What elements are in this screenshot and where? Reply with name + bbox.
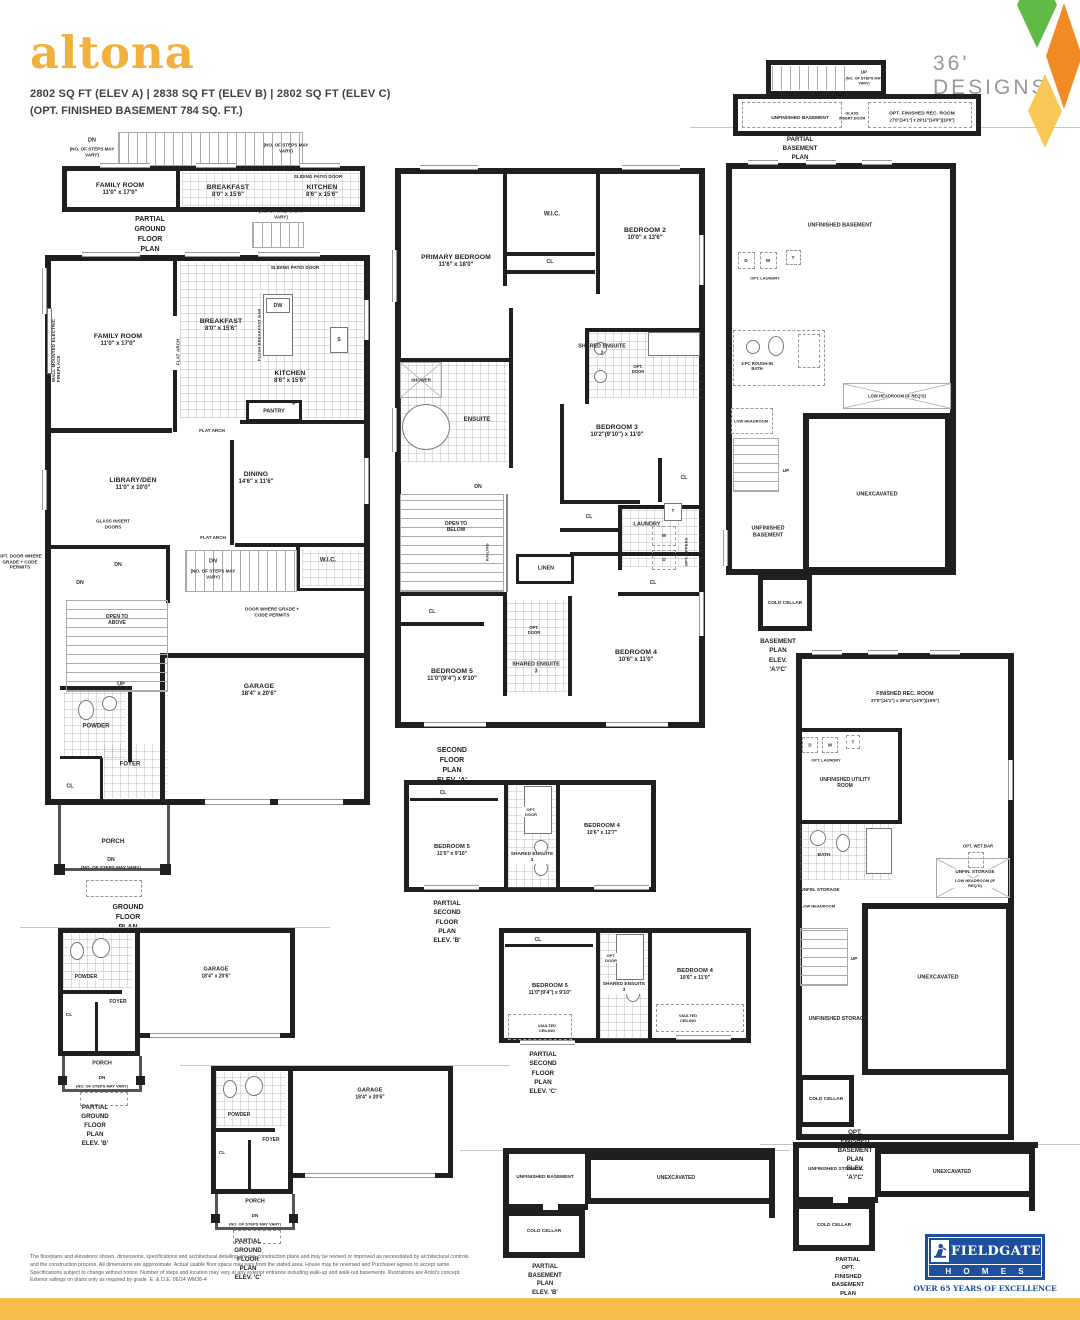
toilet — [78, 700, 94, 720]
note-cl: CL — [547, 259, 554, 266]
wall — [618, 505, 705, 509]
note-cl: CL — [535, 937, 542, 943]
wall — [556, 784, 560, 888]
room-name: BEDROOM 4 — [567, 823, 637, 830]
room-label-library: LIBRARY/DEN 11'0" x 10'0" — [95, 477, 171, 493]
window — [196, 163, 236, 168]
note-dn: DN — [107, 857, 115, 864]
caption-line: ELEV. 'C' — [529, 1087, 556, 1096]
wall — [658, 458, 662, 502]
note-tank: T — [792, 255, 795, 261]
porch-post — [211, 1214, 220, 1223]
window — [606, 722, 668, 727]
room-dims: 18'4" x 20'6" — [219, 691, 299, 699]
floor-tile — [507, 600, 567, 692]
room-name: BEDROOM 5 — [507, 983, 593, 990]
tub-outline — [798, 334, 820, 368]
note-open-above: OPEN TO ABOVE — [99, 614, 135, 627]
porch-steps — [86, 880, 142, 897]
room-label-ensuite: ENSUITE — [464, 416, 491, 424]
window — [723, 530, 728, 566]
note-opt-door: OPT. DOOR — [525, 625, 543, 636]
wall — [769, 1204, 775, 1218]
wall-outline — [135, 928, 295, 1038]
window — [82, 252, 140, 257]
room-name: BEDROOM 5 — [412, 844, 492, 851]
porch-post — [136, 1076, 145, 1085]
note-tank: T — [672, 509, 675, 515]
caption-line: ELEV. 'B' — [81, 1140, 109, 1149]
room-name: BREAKFAST — [193, 184, 263, 192]
note-dn: DN — [474, 484, 482, 491]
sink — [102, 696, 117, 711]
wall — [898, 728, 902, 822]
caption-line: PARTIAL GROUND FLOOR PLAN — [81, 1104, 109, 1140]
note-low-headroom: LOW HEADROOM (IF REQ'D) — [867, 393, 927, 398]
window — [868, 650, 898, 655]
room-name: KITCHEN — [259, 370, 321, 378]
sink — [92, 938, 110, 958]
note-cl: CL — [586, 514, 593, 520]
plan-caption: PARTIAL BASEMENT PLAN ELEV. 'B' — [528, 1263, 562, 1298]
note-dn: DN — [209, 559, 217, 566]
room-label-foyer: FOYER — [109, 999, 126, 1005]
fieldgate-wordmark: FIELDGATE — [951, 1244, 1041, 1259]
note-up: UP — [783, 469, 790, 475]
window — [812, 650, 842, 655]
room-label-ensuite2: SHARED ENSUITE 2 — [577, 343, 627, 357]
window — [748, 160, 778, 165]
room-label-powder: POWDER — [75, 974, 98, 980]
toilet — [70, 942, 84, 960]
room-label-bedroom4: BEDROOM 4 10'6" x 11'0" — [601, 649, 671, 665]
bathtub — [402, 404, 450, 450]
wall — [509, 308, 513, 468]
note-opt-laundry: OPT. LAUNDRY — [750, 276, 779, 281]
disclaimer-line: Exterior railings on plans only as requi… — [30, 1277, 470, 1285]
room-dims: 18'4" x 20'6" — [181, 973, 251, 980]
room-name: FAMILY ROOM — [85, 182, 155, 190]
room-label-garage: GARAGE 18'4" x 20'6" — [219, 683, 299, 699]
note-tank: T — [852, 739, 855, 745]
window — [520, 1040, 575, 1045]
wall — [173, 261, 177, 316]
room-name: BEDROOM 4 — [660, 968, 730, 975]
bathtub — [648, 332, 700, 356]
wall — [800, 728, 900, 732]
room-label-cold: COLD CELLAR — [806, 1097, 846, 1103]
room-label-storage: UNFINISHED STORAGE — [807, 1167, 863, 1173]
room-label-utility: UNFINISHED UTILITY ROOM — [813, 777, 877, 790]
room-dims: 11'0" x 17'0" — [85, 190, 155, 198]
room-label-unfin: UNFINISHED BASEMENT — [770, 116, 830, 122]
room-label-foyer: FOYER — [120, 761, 141, 769]
wall — [176, 171, 180, 212]
note-opt-door: OPT. DOOR — [602, 953, 620, 963]
note-wet-bar: OPT. WET BAR — [963, 843, 993, 848]
window — [676, 1035, 731, 1040]
room-label-ensuite3: SHARED ENSUITE 3 — [509, 852, 555, 864]
wall — [95, 1002, 98, 1052]
note-washer: W — [662, 534, 667, 540]
room-label-cold: COLD CELLAR — [765, 601, 805, 607]
note-door-grade: DOOR WHERE GRADE + CODE PERMITS — [241, 606, 303, 617]
room-label-bath: BATH — [818, 853, 831, 859]
note-cl: CL — [650, 580, 657, 586]
room-label-storage-c: UNFINISHED STORAGE — [808, 1016, 868, 1023]
caption-line: PARTIAL OPT. FINISHED BASEMENT PLAN — [832, 1256, 865, 1298]
note-dn: DN — [252, 1213, 259, 1219]
note-flat-arch: FLAT ARCH — [200, 535, 226, 541]
wall — [160, 653, 365, 658]
window — [185, 252, 240, 257]
stairs — [800, 928, 848, 986]
room-label-ensuite3: SHARED ENSUITE 3 — [511, 661, 561, 675]
note-washer: W — [766, 258, 770, 264]
room-label-dining: DINING 14'6" x 11'6" — [221, 471, 291, 487]
note-up: UP — [851, 957, 858, 963]
room-label-wic: W.I.C. — [320, 557, 336, 565]
window — [420, 165, 478, 170]
wall — [503, 270, 595, 274]
window — [424, 722, 486, 727]
room-label-bedroom5: BEDROOM 5 11'0"(9'4") x 9'10" — [409, 668, 495, 684]
fieldgate-logo: FIELDGATE H O M E S — [925, 1234, 1045, 1280]
wall — [503, 596, 507, 696]
caption-line: PARTIAL BASEMENT PLAN — [783, 136, 818, 163]
note-dn: DN — [99, 1075, 106, 1081]
note-vaulted: VAULTED CEILING — [671, 1013, 705, 1023]
room-label-garage: GARAGE 18'4" x 20'6" — [181, 966, 251, 979]
note-glass-door: GLASS INSERT DOOR — [838, 111, 866, 120]
room-dims: 8'6" x 15'6" — [291, 192, 353, 200]
room-label-ensuite3: SHARED ENSUITE 3 — [601, 982, 647, 994]
note-washer: W — [828, 742, 832, 748]
note-cl: CL — [681, 475, 688, 481]
room-name: PRIMARY BEDROOM — [414, 254, 498, 262]
caption-line: PARTIAL SECOND FLOOR PLAN — [529, 1050, 556, 1087]
room-dims: 8'0" x 15'6" — [193, 192, 263, 200]
plan-caption: PARTIAL GROUND FLOOR PLAN ELEV. 'B' — [81, 1104, 109, 1149]
room-label-family: FAMILY ROOM 11'0" x 17'0" — [85, 182, 155, 198]
room-dims: 10'6" x 12'7" — [567, 830, 637, 837]
bathtub — [616, 934, 644, 980]
wall — [173, 370, 177, 432]
note-opt-door: OPT. DOOR — [629, 364, 647, 375]
room-dims: 10'6" x 11'0" — [660, 975, 730, 982]
room-label-bedroom4: BEDROOM 4 10'6" x 12'7" — [567, 823, 637, 837]
room-label-bedroom2: BEDROOM 2 10'0" x 13'6" — [610, 227, 680, 243]
caption-line: BASEMENT PLAN — [760, 637, 796, 656]
room-label-pantry: PANTRY — [263, 409, 285, 416]
room-label-bedroom5: BEDROOM 5 11'0" x 9'10" — [412, 844, 492, 858]
sink — [746, 340, 760, 354]
wall — [399, 622, 484, 626]
room-name: BEDROOM 3 — [574, 424, 660, 432]
room-label-cold: COLD CELLAR — [814, 1223, 854, 1229]
note-dn: DN — [114, 562, 122, 569]
window — [364, 458, 369, 504]
wall — [100, 758, 103, 805]
window — [862, 160, 892, 165]
note-flat-arch: FLAT ARCH — [199, 428, 225, 434]
room-label-primary: PRIMARY BEDROOM 11'6" x 18'0" — [414, 254, 498, 270]
window — [42, 470, 47, 510]
window — [258, 252, 320, 257]
note-dn: DN — [88, 138, 96, 145]
note-cl: CL — [429, 609, 436, 615]
room-label-storage-b: UNFIN. STORAGE — [955, 869, 994, 875]
caption-line: ELEV. 'A'/'C' — [760, 656, 796, 675]
room-name: BEDROOM 4 — [601, 649, 671, 657]
room-dims: 11'0" x 17'0" — [80, 341, 156, 349]
floorplan-sheet: altona 2802 SQ FT (ELEV A) | 2838 SQ FT … — [0, 0, 1080, 1320]
room-dims: 8'6" x 15'6" — [259, 378, 321, 386]
note-steps: (NO. OF STEPS MAY VARY) — [81, 865, 141, 871]
room-name: GARAGE — [335, 1087, 405, 1094]
room-dims: 11'0"(9'4") x 9'10" — [507, 990, 593, 997]
window — [699, 235, 704, 285]
room-label-unfin: UNFINISHED BASEMENT — [515, 1175, 575, 1181]
window — [424, 885, 479, 890]
room-label-breakfast: BREAKFAST 8'0" x 15'6" — [193, 184, 263, 200]
wall — [585, 328, 589, 404]
note-railing: RAILING — [485, 529, 490, 561]
garage-door — [278, 799, 343, 805]
room-name: DINING — [221, 471, 291, 479]
wall — [503, 1148, 509, 1210]
room-label-porch: PORCH — [92, 1061, 111, 1068]
room-dims: 18'4" x 20'6" — [335, 1094, 405, 1101]
room-label-laundry: LAUNDRY — [633, 522, 660, 529]
window — [392, 408, 397, 452]
garage-door — [205, 799, 270, 805]
room-dims: 10'2"(9'10") x 11'0" — [574, 432, 660, 440]
railing — [506, 494, 508, 592]
wall — [503, 252, 595, 256]
room-dims: 27'0"(14'1") x 29'11"(14'9")(19'9") — [840, 697, 970, 703]
room-label-bath: 3-PC ROUGH-IN BATH — [739, 361, 775, 372]
room-label-unexcavated: UNEXCAVATED — [657, 1175, 695, 1182]
note-opt-door-grade: OPT. DOOR WHERE GRADE + CODE PERMITS — [0, 553, 42, 570]
note-steps: (NO. OF STEPS MAY VARY) — [64, 146, 120, 157]
stairs — [252, 222, 304, 248]
note-steps: (NO. OF STEPS MAY VARY) — [229, 1222, 281, 1227]
note-steps: (NO. OF STEPS MAY VARY) — [253, 208, 309, 219]
note-opt-door: OPT. DOOR — [522, 807, 540, 817]
note-fridge: F — [292, 401, 295, 408]
room-label-kitchen: KITCHEN 8'6" x 15'6" — [259, 370, 321, 386]
room-name: FAMILY ROOM — [80, 333, 156, 341]
note-up: UP — [117, 682, 125, 689]
note-up: UP — [861, 69, 867, 75]
diamond-logo-green — [1017, 0, 1057, 48]
wall — [235, 543, 366, 547]
room-label-unexcavated: UNEXCAVATED — [917, 975, 958, 982]
wall — [128, 686, 132, 762]
porch-post — [58, 1076, 67, 1085]
wall — [793, 1142, 799, 1203]
room-name: LIBRARY/DEN — [95, 477, 171, 485]
window — [622, 165, 680, 170]
toilet — [223, 1080, 237, 1098]
window — [300, 163, 340, 168]
note-sliding-patio-door: SLIDING PATIO DOOR — [271, 265, 319, 271]
room-dims: 10'0" x 13'6" — [610, 235, 680, 243]
disclaimer-text: The floorplans and elevations shown, dim… — [30, 1254, 470, 1285]
room-dims: 11'0"(9'4") x 9'10" — [409, 676, 495, 684]
page-title: altona — [30, 26, 195, 79]
porch-post — [289, 1214, 298, 1223]
room-label-family: FAMILY ROOM 11'0" x 17'0" — [80, 333, 156, 349]
room-label-powder: POWDER — [83, 723, 110, 731]
room-label-kitchen: KITCHEN 8'6" x 15'6" — [291, 184, 353, 200]
wall — [166, 548, 170, 603]
caption-line: ELEV. 'B' — [433, 936, 460, 945]
stairs — [733, 438, 779, 492]
room-label-porch: PORCH — [101, 838, 124, 846]
wall — [568, 596, 572, 696]
window — [100, 163, 150, 168]
room-name: GARAGE — [181, 966, 251, 973]
caption-line: PARTIAL GROUND FLOOR PLAN — [130, 215, 169, 256]
builder-icon-svg — [931, 1242, 949, 1260]
plan-caption: PARTIAL SECOND FLOOR PLAN ELEV. 'B' — [433, 899, 460, 945]
room-label-porch: PORCH — [245, 1199, 264, 1206]
logo-tagline: OVER 65 YEARS OF EXCELLENCE — [903, 1284, 1067, 1293]
room-label-rec: FINISHED REC. ROOM 27'0"(14'1") x 29'11"… — [840, 691, 970, 703]
room-label-bedroom4: BEDROOM 4 10'6" x 11'0" — [660, 968, 730, 982]
room-dims: 8'0" x 15'6" — [189, 326, 253, 334]
wall — [50, 428, 172, 433]
room-dims: 10'6" x 11'0" — [601, 657, 671, 665]
builder-icon — [931, 1240, 949, 1262]
unexcavated-outline — [862, 903, 1012, 1075]
wall — [560, 404, 564, 504]
wall — [248, 1140, 251, 1190]
toilet — [768, 336, 784, 356]
wall — [399, 592, 507, 596]
porch-post — [54, 864, 65, 875]
floor-tile — [302, 550, 364, 586]
sink — [594, 370, 607, 383]
note-steps: (NO. OF STEPS MAY VARY) — [258, 142, 314, 153]
room-name: BEDROOM 2 — [610, 227, 680, 235]
window — [594, 885, 649, 890]
sqft-specs: 2802 SQ FT (ELEV A) | 2838 SQ FT (ELEV B… — [30, 88, 391, 100]
room-label-cold: COLD CELLAR — [524, 1229, 564, 1235]
room-label-cl: CL — [66, 784, 73, 791]
note-flush-bar: FLUSH BREAKFAST BAR — [257, 299, 262, 361]
porch-post — [160, 864, 171, 875]
room-name: GARAGE — [219, 683, 299, 691]
window — [699, 592, 704, 636]
note-fireplace: WALL MOUNTED ELECTRIC FIREPLACE — [51, 298, 61, 382]
note-low-headroom: LOW HEADROOM — [798, 904, 838, 909]
room-name: KITCHEN — [291, 184, 353, 192]
wall — [618, 505, 622, 570]
room-label-cl: CL — [66, 1013, 72, 1019]
window — [806, 160, 836, 165]
bathtub — [866, 828, 892, 874]
note-low-headroom: LOW HEADROOM — [732, 419, 770, 424]
note-dn: DN — [76, 580, 84, 587]
note-glass-doors: GLASS INSERT DOORS — [89, 518, 137, 529]
wall — [50, 545, 170, 549]
room-label-unfin-low: UNFINISHED BASEMENT — [738, 525, 798, 539]
floor-tile — [104, 744, 168, 800]
window — [392, 250, 397, 302]
wall — [62, 990, 122, 994]
room-label-shower: SHOWER — [411, 377, 431, 383]
wall — [560, 500, 640, 504]
wall-outline — [288, 1066, 453, 1178]
room-label-powder: POWDER — [228, 1112, 251, 1118]
room-label-unfin-top: UNFINISHED BASEMENT — [805, 223, 875, 230]
room-label-wic: W.I.C. — [544, 211, 560, 219]
room-dims: 27'0"(14'1") x 29'11"(14'9")(19'9") — [866, 117, 978, 122]
note-opt-uppers: OPT. UPPERS — [684, 530, 689, 566]
wall — [596, 174, 600, 294]
window — [930, 650, 960, 655]
room-label-bedroom5: BEDROOM 5 11'0"(9'4") x 9'10" — [507, 983, 593, 997]
room-label-unexcavated: UNEXCAVATED — [856, 492, 897, 499]
room-label-garage: GARAGE 18'4" x 20'6" — [335, 1087, 405, 1100]
note-dw: DW — [274, 303, 283, 310]
room-label-bedroom3: BEDROOM 3 10'2"(9'10") x 11'0" — [574, 424, 660, 440]
room-name: BEDROOM 5 — [409, 668, 495, 676]
bottom-accent-bar — [0, 1298, 1080, 1320]
wall — [505, 944, 593, 947]
note-flat-arch: FLAT ARCH — [176, 321, 181, 365]
garage-door — [150, 1033, 280, 1038]
sink — [810, 830, 826, 846]
note-low-headroom: LOW HEADROOM (IF REQ'D) — [949, 878, 1001, 888]
window — [364, 300, 369, 340]
wall — [560, 528, 618, 532]
note-sliding-patio-door: SLIDING PATIO DOOR — [294, 174, 342, 180]
fieldgate-logo-box: FIELDGATE H O M E S — [925, 1234, 1045, 1280]
disclaimer-line: The floorplans and elevations shown, dim… — [30, 1254, 470, 1262]
wall — [215, 1128, 275, 1132]
opt-basement-spec: (OPT. FINISHED BASEMENT 784 SQ. FT.) — [30, 105, 243, 117]
plan-caption: OPT. FINISHED BASEMENT PLAN ELEV. 'A'/'C… — [838, 1129, 873, 1183]
plan-caption: PARTIAL SECOND FLOOR PLAN ELEV. 'C' — [529, 1050, 556, 1096]
room-label-storage-a: UNFIN. STORAGE — [798, 887, 842, 893]
room-label-breakfast: BREAKFAST 8'0" x 15'6" — [189, 318, 253, 334]
window — [1008, 760, 1013, 800]
note-dryer: D — [744, 258, 747, 264]
note-cl: CL — [440, 790, 447, 796]
note-stove: S — [337, 337, 340, 344]
note-dryer: D — [662, 558, 665, 564]
wall — [648, 932, 652, 1039]
room-dims: 11'0" x 9'10" — [412, 851, 492, 858]
stairs — [772, 66, 850, 90]
note-steps: (NO. OF STEPS MAY VARY) — [76, 1084, 128, 1089]
note-steps: (NO. OF STEPS MAY VARY) — [844, 76, 884, 85]
caption-line: PARTIAL BASEMENT PLAN — [528, 1263, 562, 1289]
dashed-outline — [742, 102, 842, 128]
caption-line: SECOND FLOOR PLAN — [437, 746, 467, 776]
wall — [618, 592, 705, 596]
room-dims: 11'0" x 10'0" — [95, 485, 171, 493]
room-label-foyer: FOYER — [262, 1137, 279, 1143]
room-name: BREAKFAST — [189, 318, 253, 326]
disclaimer-line: Specifications subject to change without… — [30, 1270, 470, 1278]
sink — [245, 1076, 263, 1096]
note-dryer: D — [808, 742, 811, 748]
